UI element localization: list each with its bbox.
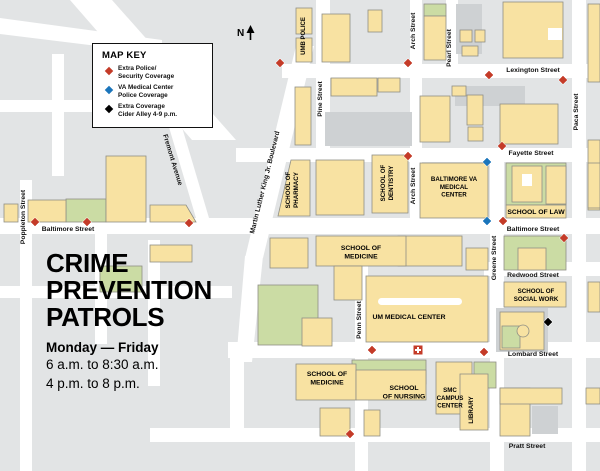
street-label-pine-street: Pine Street bbox=[317, 81, 324, 117]
street-label-penn-street: Penn Street bbox=[356, 300, 363, 339]
building bbox=[475, 30, 485, 42]
street-label-arch-street: Arch Street bbox=[410, 167, 417, 204]
building-label-baltimore-va-medical-center: CENTER bbox=[441, 192, 467, 199]
building-label-school-of-nursing: SCHOOL bbox=[389, 385, 418, 392]
building-label-smc-campus-center: CAMPUS bbox=[437, 395, 464, 402]
courtyard bbox=[522, 174, 532, 186]
building bbox=[588, 282, 600, 312]
page-title-line: PREVENTION bbox=[46, 277, 212, 304]
north-indicator: N bbox=[237, 25, 255, 41]
building-label-umb-police: UMB POLICE bbox=[301, 17, 307, 55]
street-label-arch-street: Arch Street bbox=[410, 12, 417, 49]
building bbox=[368, 10, 382, 32]
courtyard bbox=[378, 298, 462, 305]
street-label-lombard-street: Lombard Street bbox=[508, 351, 559, 358]
gray-building bbox=[325, 112, 412, 146]
building-label-school-of-social-work: SOCIAL WORK bbox=[514, 296, 559, 303]
building-label-school-of-law: SCHOOL OF LAW bbox=[507, 209, 565, 216]
green-space bbox=[424, 4, 446, 16]
street-label-lexington-street: Lexington Street bbox=[506, 67, 560, 74]
building bbox=[366, 276, 488, 342]
page-title-line: PATROLS bbox=[46, 304, 212, 331]
map-key-item-cider-alley: Extra Coverage Cider Alley 4-9 p.m. bbox=[106, 103, 205, 118]
building bbox=[398, 236, 462, 266]
building bbox=[320, 408, 350, 436]
north-label: N bbox=[237, 28, 244, 39]
building bbox=[420, 96, 450, 142]
building bbox=[452, 86, 466, 96]
north-arrow-icon bbox=[246, 25, 255, 41]
street bbox=[230, 356, 244, 430]
gray-building bbox=[532, 406, 558, 434]
street bbox=[572, 0, 586, 471]
map-key: MAP KEY Extra Police/ Security Coverage … bbox=[92, 43, 213, 128]
building bbox=[588, 163, 600, 208]
page-title-line: CRIME bbox=[46, 250, 212, 277]
street-label-greene-street: Greene Street bbox=[491, 235, 498, 280]
street-label-redwood-street: Redwood Street bbox=[507, 272, 559, 279]
street-label-baltimore-street: Baltimore Street bbox=[42, 226, 95, 233]
building-label-baltimore-va-medical-center: BALTIMORE VA bbox=[431, 176, 478, 183]
building-label-school-of-pharmacy: SCHOOL OF bbox=[285, 171, 292, 208]
building bbox=[295, 87, 311, 145]
building-label-baltimore-va-medical-center: MEDICAL bbox=[440, 184, 468, 191]
courtyard bbox=[548, 28, 562, 40]
building-label-school-of-pharmacy: PHARMACY bbox=[293, 171, 300, 208]
black-diamond-icon bbox=[105, 105, 113, 113]
building bbox=[518, 248, 546, 270]
schedule-time: 6 a.m. to 8:30 a.m. bbox=[46, 355, 212, 374]
building-label-school-of-social-work: SCHOOL OF bbox=[518, 288, 555, 295]
building bbox=[460, 30, 472, 42]
building bbox=[468, 127, 483, 141]
street bbox=[52, 54, 64, 176]
building bbox=[588, 4, 600, 82]
building bbox=[106, 156, 146, 222]
building bbox=[270, 238, 308, 268]
campus-map: Lexington StreetFayette StreetBaltimore … bbox=[0, 0, 600, 471]
building-label-school-of-dentistry: DENTISTRY bbox=[388, 165, 395, 201]
red-diamond-icon bbox=[105, 67, 113, 75]
building bbox=[462, 46, 478, 56]
building-label-school-of-medicine: MEDICINE bbox=[344, 253, 378, 260]
blue-diamond-icon bbox=[105, 86, 113, 94]
building bbox=[424, 16, 446, 60]
building bbox=[517, 325, 529, 337]
map-key-label: Extra Police/ Security Coverage bbox=[118, 65, 174, 80]
building-label-school-of-medicine: MEDICINE bbox=[310, 379, 344, 386]
building bbox=[467, 95, 483, 125]
schedule-days: Monday — Friday bbox=[46, 340, 212, 355]
map-key-label: VA Medical Center Police Coverage bbox=[118, 84, 173, 99]
street bbox=[0, 100, 92, 112]
building-label-school-of-medicine: SCHOOL OF bbox=[307, 371, 347, 378]
map-key-item-va-police: VA Medical Center Police Coverage bbox=[106, 84, 205, 99]
street-label-pratt-street: Pratt Street bbox=[509, 443, 546, 450]
street-label-baltimore-street: Baltimore Street bbox=[507, 226, 560, 233]
building bbox=[466, 248, 488, 270]
crime-patrol-map: Lexington StreetFayette StreetBaltimore … bbox=[0, 0, 600, 471]
building-label-school-of-nursing: OF NURSING bbox=[383, 393, 426, 400]
building bbox=[4, 204, 18, 222]
street-label-fayette-street: Fayette Street bbox=[509, 150, 555, 157]
street-label-poppleton-street: Poppleton Street bbox=[20, 189, 27, 244]
map-key-title: MAP KEY bbox=[102, 50, 205, 61]
building-label-um-medical-center: UM MEDICAL CENTER bbox=[372, 314, 445, 321]
building bbox=[500, 104, 558, 144]
building-label-school-of-medicine: SCHOOL OF bbox=[341, 245, 381, 252]
building bbox=[378, 78, 400, 92]
building bbox=[331, 78, 377, 96]
building bbox=[334, 266, 362, 300]
street-label-pearl-street: Pearl Street bbox=[446, 28, 453, 67]
street-label-paca-street: Paca Street bbox=[573, 93, 580, 131]
building-label-smc-campus-center: SMC bbox=[443, 387, 457, 394]
building bbox=[546, 166, 566, 204]
building bbox=[500, 388, 562, 404]
building-label-smc-campus-center: CENTER bbox=[437, 403, 463, 410]
map-key-label: Extra Coverage Cider Alley 4-9 p.m. bbox=[118, 103, 177, 118]
building bbox=[316, 160, 364, 215]
building bbox=[586, 388, 600, 404]
map-key-item-extra-police: Extra Police/ Security Coverage bbox=[106, 65, 205, 80]
building bbox=[302, 318, 332, 346]
building-label-school-of-dentistry: SCHOOL OF bbox=[380, 164, 387, 201]
building bbox=[364, 410, 380, 436]
page-title-block: CRIME PREVENTION PATROLS Monday — Friday… bbox=[46, 250, 212, 393]
building-label-library: LIBRARY bbox=[468, 395, 475, 423]
building bbox=[322, 14, 350, 62]
schedule-time: 4 p.m. to 8 p.m. bbox=[46, 374, 212, 393]
